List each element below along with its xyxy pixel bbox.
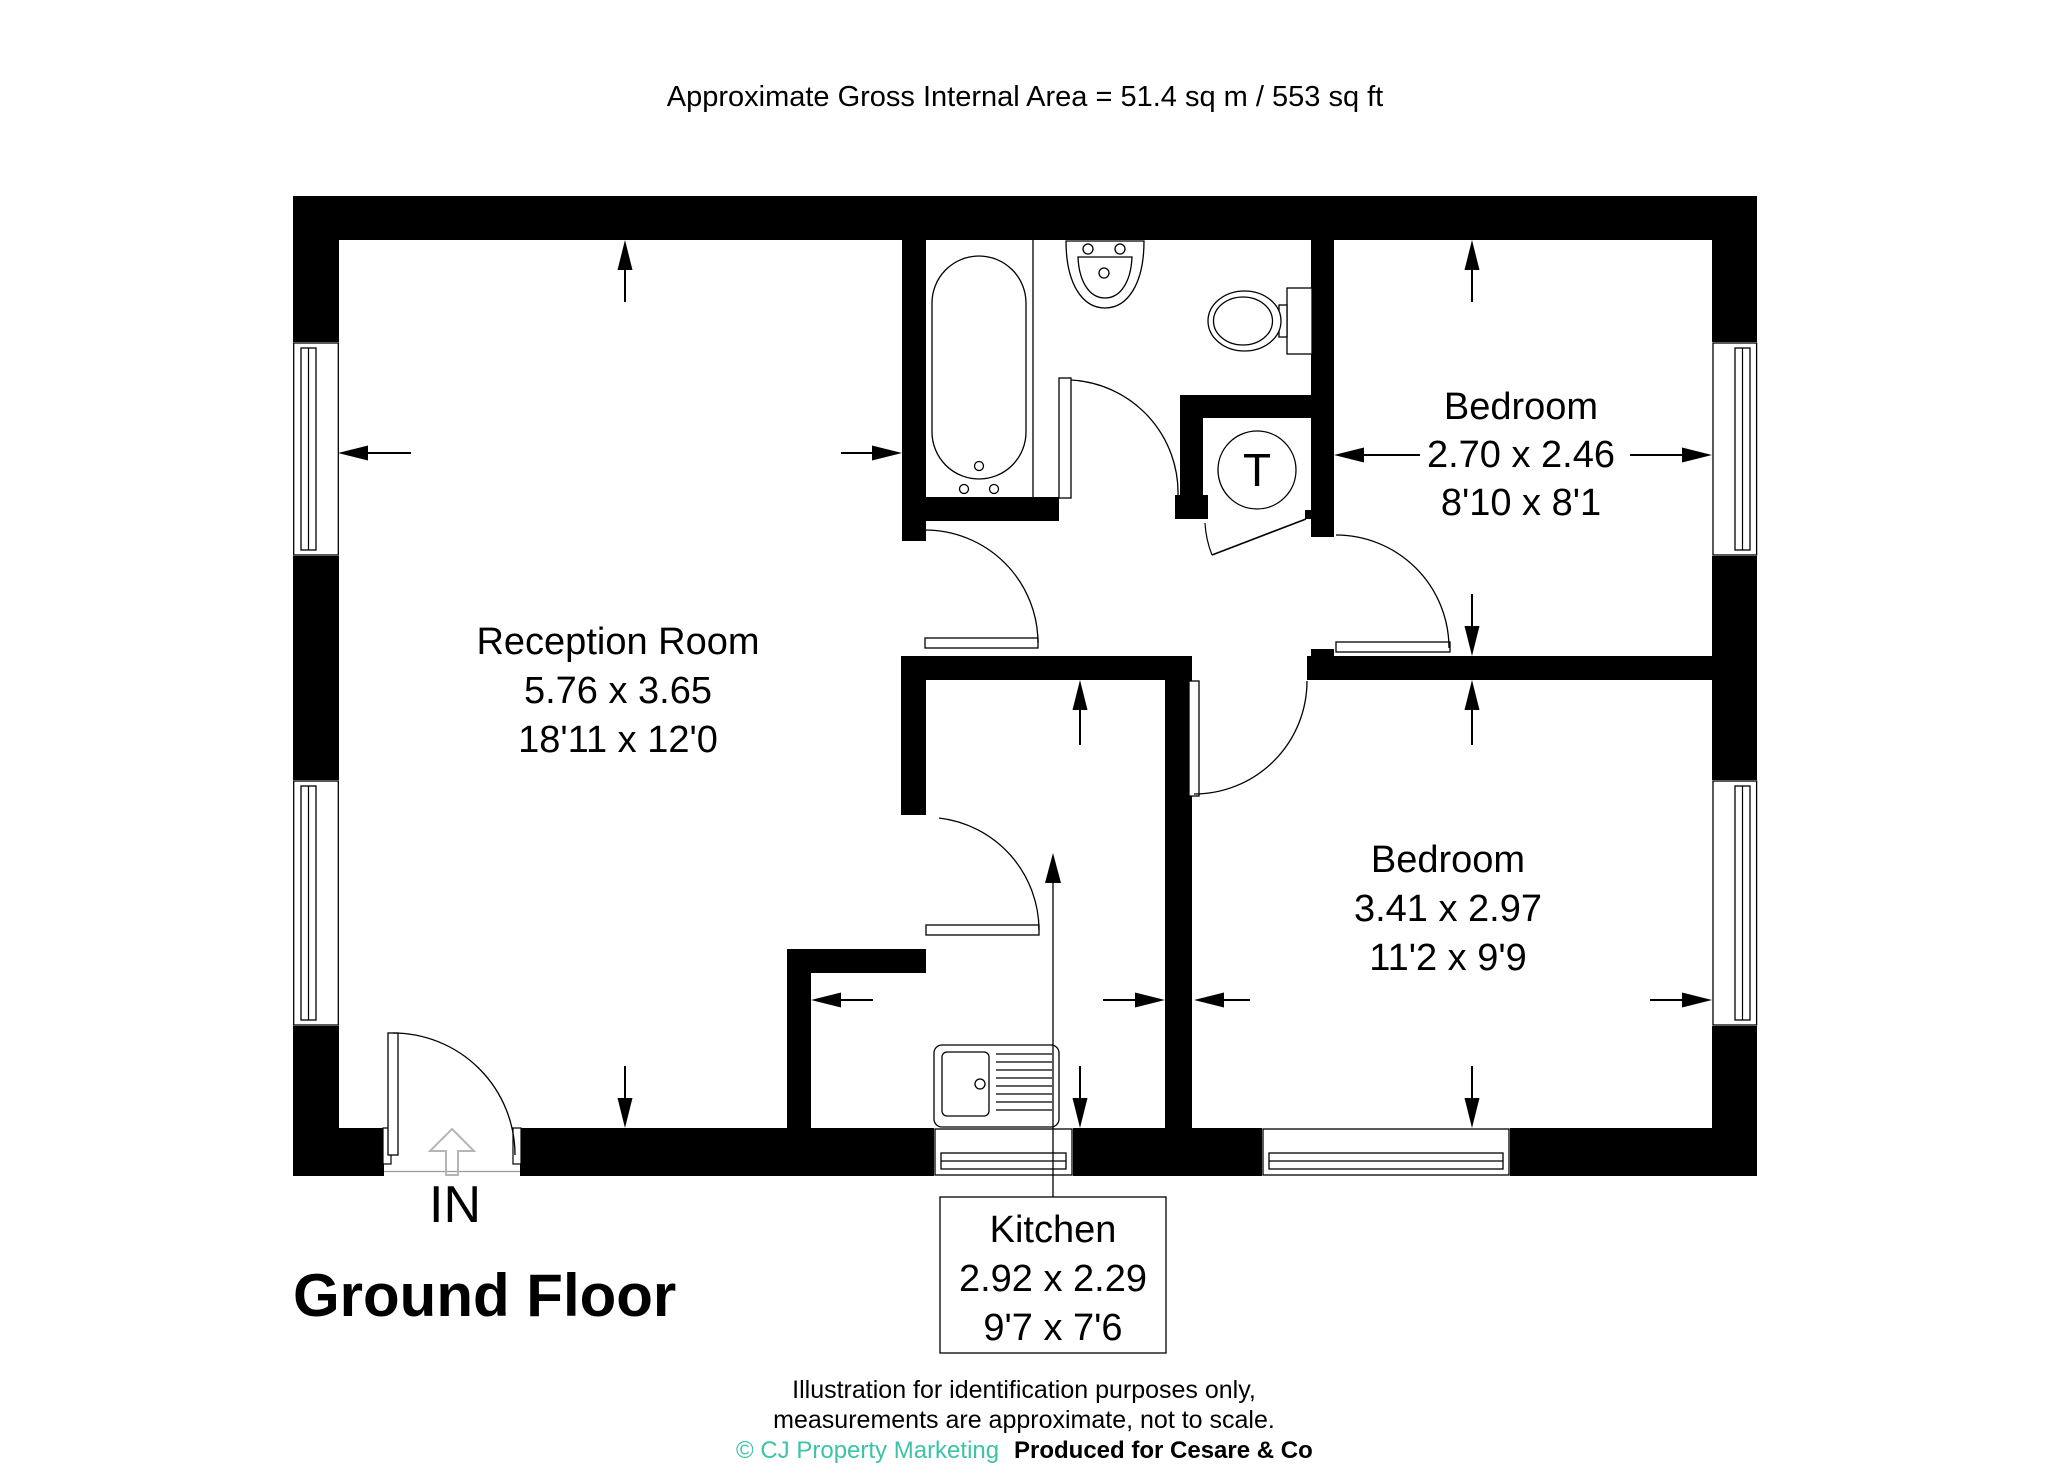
svg-text:Bedroom: Bedroom <box>1371 839 1525 881</box>
svg-text:9'7 x 7'6: 9'7 x 7'6 <box>983 1307 1122 1349</box>
svg-text:Produced for Cesare & Co: Produced for Cesare & Co <box>1014 1437 1313 1464</box>
svg-text:8'10 x 8'1: 8'10 x 8'1 <box>1441 482 1601 524</box>
svg-text:IN: IN <box>429 1176 481 1234</box>
svg-text:Kitchen: Kitchen <box>990 1209 1117 1251</box>
svg-text:2.70 x 2.46: 2.70 x 2.46 <box>1427 434 1615 476</box>
svg-text:T: T <box>1243 444 1271 496</box>
svg-text:18'11 x 12'0: 18'11 x 12'0 <box>518 719 718 761</box>
svg-text:5.76 x 3.65: 5.76 x 3.65 <box>524 670 712 712</box>
svg-text:Bedroom: Bedroom <box>1444 386 1598 428</box>
svg-text:11'2 x 9'9: 11'2 x 9'9 <box>1369 937 1526 979</box>
svg-text:measurements are approximate,: measurements are approximate, not to sca… <box>773 1406 1275 1434</box>
svg-text:2.92 x 2.29: 2.92 x 2.29 <box>959 1258 1147 1300</box>
svg-text:Ground Floor: Ground Floor <box>293 1262 676 1329</box>
svg-text:3.41 x 2.97: 3.41 x 2.97 <box>1354 888 1542 930</box>
svg-text:Illustration for identificatio: Illustration for identification purposes… <box>792 1376 1256 1404</box>
svg-text:Reception Room: Reception Room <box>476 621 759 663</box>
svg-text:Approximate Gross Internal Are: Approximate Gross Internal Area = 51.4 s… <box>667 81 1384 113</box>
svg-text:© CJ Property Marketing: © CJ Property Marketing <box>736 1437 999 1464</box>
